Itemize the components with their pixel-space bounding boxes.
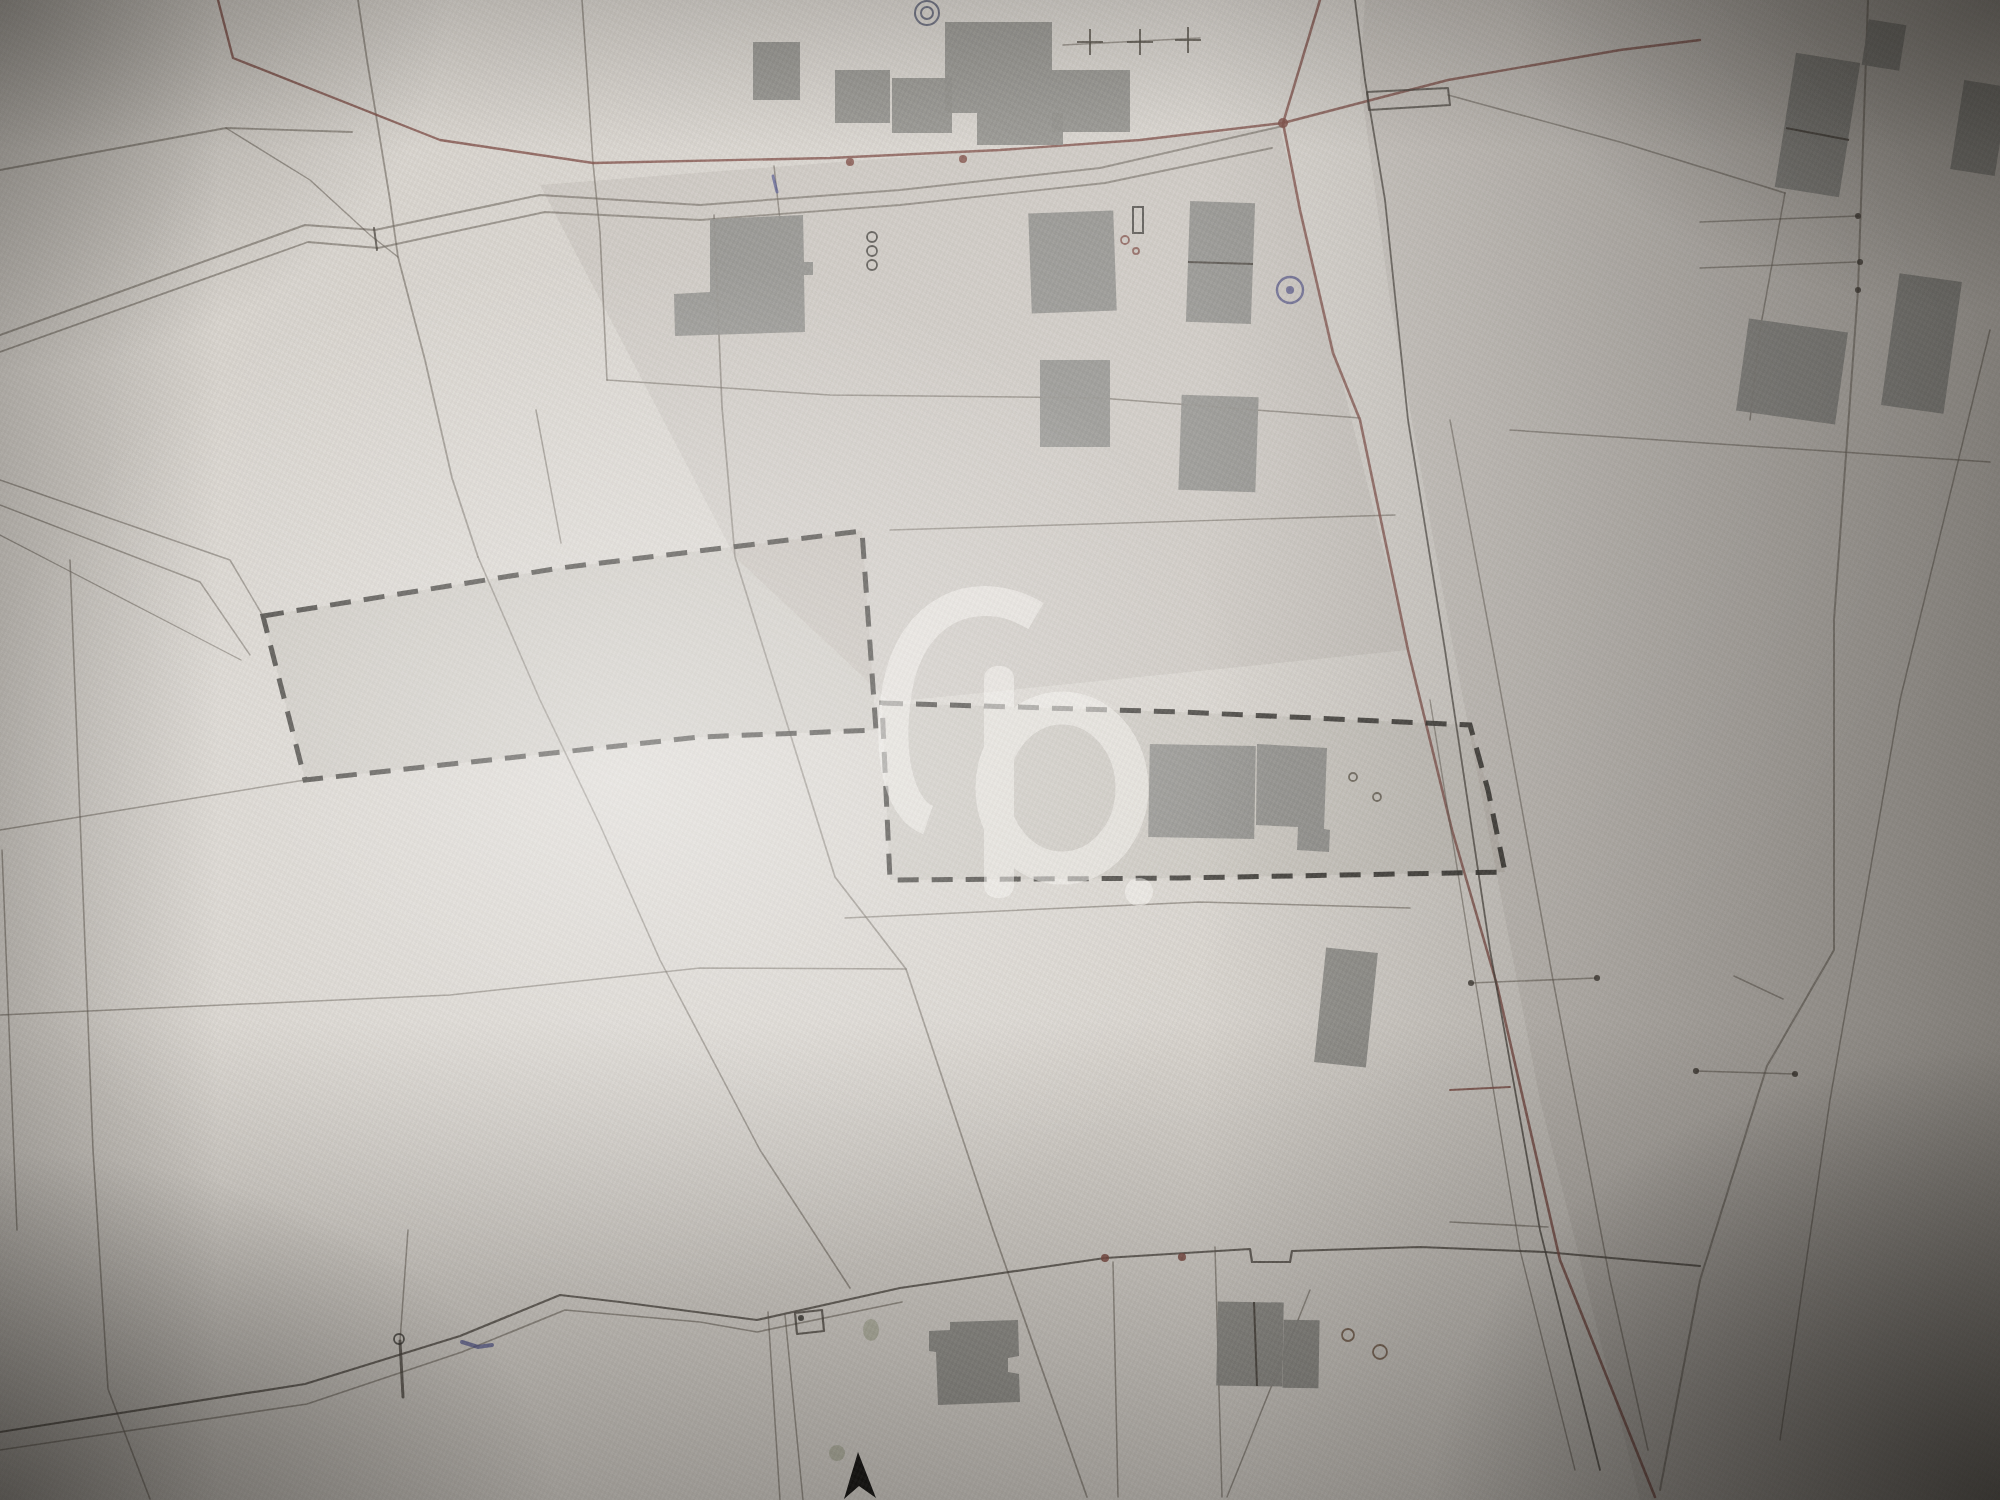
building-south-pair-annex: [1282, 1320, 1319, 1389]
building-mid-center-b: [1178, 395, 1258, 493]
structure-dot: [798, 1315, 804, 1321]
vegetation-mark-2: [829, 1445, 845, 1461]
utility-node-junction: [1278, 118, 1288, 128]
building-ne-small: [1862, 19, 1907, 70]
building-n-row-b: [892, 78, 952, 133]
node-dot-6: [1857, 259, 1863, 265]
hydrant-circle-symbol-dot: [1286, 286, 1294, 294]
line-below-east-parcel: [845, 902, 1410, 918]
building-mid-center-a: [1040, 360, 1110, 447]
building-south-pair-main: [1216, 1301, 1283, 1386]
utility-node-2: [959, 155, 967, 163]
building-south-notched: [929, 1320, 1020, 1405]
vegetation-mark-1: [863, 1319, 879, 1341]
left-horizontal-2: [0, 505, 250, 655]
node-dot-3: [1693, 1068, 1699, 1074]
utility-node-4: [1178, 1253, 1186, 1261]
left-horizontal-3: [0, 535, 241, 660]
building-mid-north-a: [1028, 211, 1116, 314]
building-nw-small-square: [753, 42, 800, 100]
bottom-flag-stem: [400, 1341, 403, 1397]
left-bottom-horizontal: [0, 968, 906, 1015]
building-e-mid-a: [1736, 318, 1848, 424]
blue-annotation-scribble: [462, 1342, 492, 1347]
left-under-parcel: [0, 780, 305, 830]
bottom-vertical-2: [768, 1312, 780, 1500]
node-dot-1: [1468, 980, 1474, 986]
building-n-large-east-wing: [1052, 70, 1130, 132]
tie-line-4: [1450, 1087, 1510, 1090]
boundary-v-descender: [358, 0, 478, 557]
left-edge-vertical-b: [70, 560, 150, 1499]
bottom-vertical-4: [1113, 1262, 1118, 1497]
left-horizontal-1: [0, 480, 263, 616]
watermark-period-dot: [1125, 878, 1153, 906]
well-circle-1: [1342, 1329, 1354, 1341]
building-n-row-a: [835, 70, 890, 123]
node-dot-7: [1855, 213, 1861, 219]
left-edge-vertical-a: [2, 850, 17, 1230]
tie-line-5: [1450, 1222, 1548, 1227]
site-plan-svg: [0, 0, 2000, 1500]
pointer-cursor-arrow: [844, 1452, 876, 1499]
survey-double-circle-inner: [921, 7, 933, 19]
boundary-v-left: [226, 128, 398, 257]
node-dot-5: [1855, 287, 1861, 293]
building-n-large-south-wing: [977, 113, 1063, 145]
building-se-of-parcel: [1314, 948, 1378, 1068]
survey-double-circle: [915, 1, 939, 25]
utility-node-3: [1101, 1254, 1109, 1262]
utility-node-1: [846, 158, 854, 166]
building-in-parcel-west: [1148, 744, 1256, 839]
boundary-topleft-ridge: [0, 128, 352, 170]
bottom-path-upper: [0, 1247, 1700, 1432]
building-n-large-main: [945, 22, 1052, 113]
node-dot-4: [1792, 1071, 1798, 1077]
site-plan-photo: [0, 0, 2000, 1500]
well-circle-2: [1373, 1345, 1387, 1359]
node-dot-2: [1594, 975, 1600, 981]
bottom-path-lower: [0, 1302, 902, 1450]
bottom-vertical-1: [400, 1230, 408, 1341]
bottom-vertical-3: [785, 1315, 803, 1500]
notch-above-parcel: [536, 410, 561, 543]
